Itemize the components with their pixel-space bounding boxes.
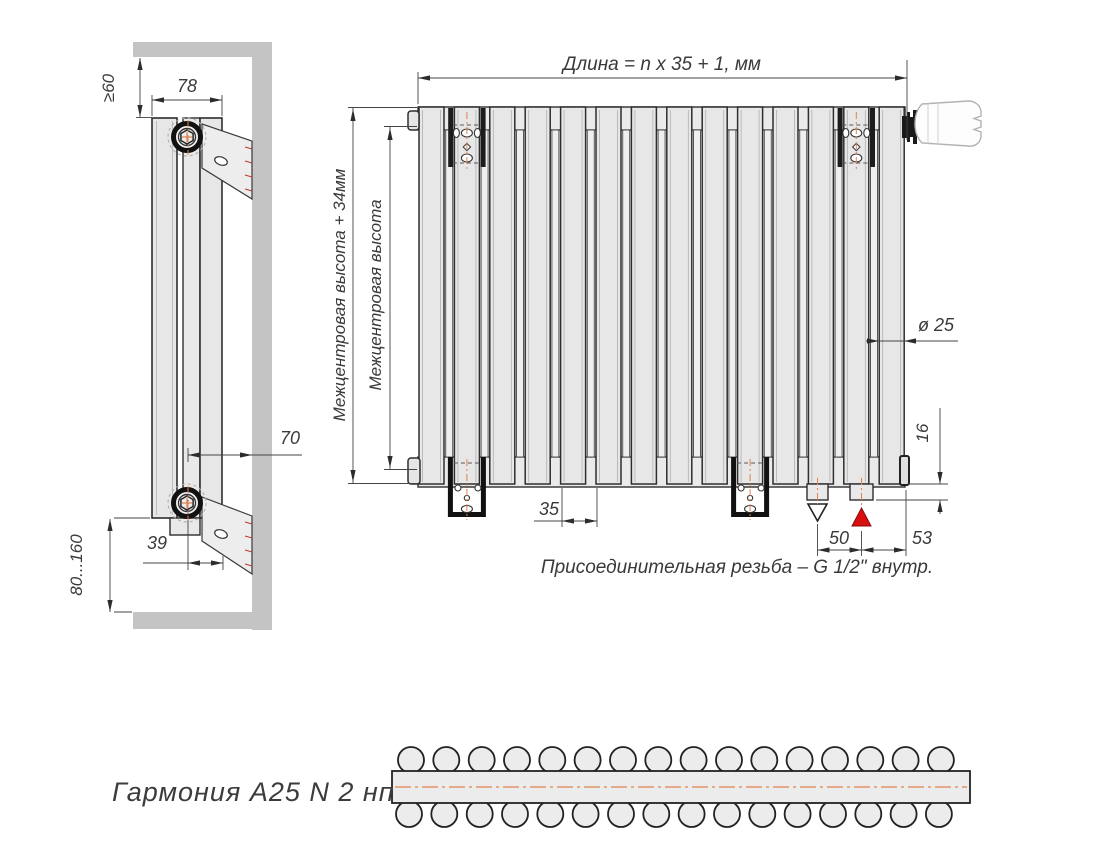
arrowhead bbox=[418, 75, 430, 80]
back-tube bbox=[764, 130, 771, 457]
top-view bbox=[392, 747, 970, 827]
arrowhead bbox=[387, 456, 392, 468]
tube-section bbox=[467, 801, 493, 827]
tube-section bbox=[398, 747, 424, 773]
dim-height-overall-label: Межцентровая высота + 34мм bbox=[330, 168, 349, 421]
dim-height-centers-label: Межцентровая высота bbox=[366, 199, 385, 390]
dim-53-label: 53 bbox=[912, 528, 932, 548]
bottom-connections bbox=[807, 484, 873, 526]
tube-section bbox=[575, 747, 601, 773]
arrowhead bbox=[350, 470, 355, 482]
back-tube bbox=[446, 130, 453, 457]
tube-section bbox=[537, 801, 563, 827]
tube-section bbox=[787, 747, 813, 773]
ceiling-section bbox=[133, 42, 272, 57]
tube-section bbox=[539, 747, 565, 773]
arrowhead bbox=[937, 500, 942, 512]
arrowhead bbox=[107, 519, 112, 531]
dim-16-label: 16 bbox=[913, 423, 932, 442]
tube-section bbox=[431, 801, 457, 827]
arrowhead bbox=[894, 547, 906, 552]
floor-section bbox=[133, 612, 272, 629]
tube-section bbox=[857, 747, 883, 773]
tube-section bbox=[785, 801, 811, 827]
arrowhead bbox=[210, 97, 222, 102]
left-bottom-cap bbox=[408, 458, 420, 484]
arrowhead bbox=[137, 58, 142, 70]
tube-section bbox=[926, 801, 952, 827]
tube-section bbox=[504, 747, 530, 773]
back-tube bbox=[871, 130, 878, 457]
back-tube bbox=[835, 130, 842, 457]
back-tube bbox=[623, 130, 630, 457]
back-tube bbox=[694, 130, 701, 457]
back-tube bbox=[729, 130, 736, 457]
right-bottom-cap bbox=[900, 456, 909, 485]
dim-35-label: 35 bbox=[539, 499, 560, 519]
arrowhead bbox=[240, 452, 252, 457]
dim-60-label: ≥60 bbox=[99, 73, 118, 102]
thread-note-label: Присоединительная резьба – G 1/2" внутр. bbox=[541, 557, 933, 578]
arrowhead bbox=[137, 105, 142, 117]
tube-section bbox=[751, 747, 777, 773]
tube-section bbox=[822, 747, 848, 773]
tube-section bbox=[469, 747, 495, 773]
tube-section bbox=[893, 747, 919, 773]
tube-section bbox=[645, 747, 671, 773]
wall-section bbox=[252, 42, 272, 630]
tube-section bbox=[820, 801, 846, 827]
arrowhead bbox=[387, 128, 392, 140]
back-row-sections bbox=[398, 747, 954, 773]
back-tube bbox=[517, 130, 524, 457]
arrowhead bbox=[895, 75, 907, 80]
union-nut-icon bbox=[168, 484, 206, 522]
tube-section bbox=[891, 801, 917, 827]
arrowhead bbox=[350, 109, 355, 121]
tube-section bbox=[749, 801, 775, 827]
back-tube bbox=[587, 130, 594, 457]
tube-section bbox=[681, 747, 707, 773]
tube-section bbox=[716, 747, 742, 773]
wall-bracket-bottom bbox=[202, 497, 252, 574]
tube-section bbox=[608, 801, 634, 827]
back-tube bbox=[481, 130, 488, 457]
tube-section bbox=[855, 801, 881, 827]
dim-39-label: 39 bbox=[147, 533, 167, 553]
dim-70-label: 70 bbox=[280, 428, 300, 448]
dim-floor-label: 80...160 bbox=[67, 534, 86, 596]
tube-section bbox=[396, 801, 422, 827]
tube-section bbox=[573, 801, 599, 827]
arrowhead bbox=[850, 547, 862, 552]
tube-section bbox=[714, 801, 740, 827]
dim-50-label: 50 bbox=[829, 528, 849, 548]
dim-diameter-label: ø 25 bbox=[918, 315, 955, 335]
back-tube bbox=[800, 130, 807, 457]
flow-out-marker bbox=[808, 504, 827, 521]
tube-section bbox=[502, 801, 528, 827]
arrowhead bbox=[188, 560, 200, 565]
drawing-canvas: Длина = n x 35 + 1, мм Межцентровая высо… bbox=[0, 0, 1097, 866]
front-view bbox=[408, 101, 981, 526]
radiator-technical-drawing: Длина = n x 35 + 1, мм Межцентровая высо… bbox=[0, 0, 1097, 866]
left-top-cap bbox=[408, 111, 419, 130]
dim-length-label: Длина = n x 35 + 1, мм bbox=[561, 54, 761, 75]
arrowhead bbox=[937, 472, 942, 484]
bottom-foot bbox=[170, 518, 200, 535]
arrowhead bbox=[904, 338, 916, 343]
tube-section bbox=[928, 747, 954, 773]
arrowhead bbox=[585, 518, 597, 523]
arrowhead bbox=[818, 547, 830, 552]
thermostat-head-icon bbox=[902, 101, 981, 146]
model-title: Гармония А25 N 2 нп bbox=[112, 777, 395, 807]
tube-section bbox=[643, 801, 669, 827]
back-tube bbox=[658, 130, 665, 457]
side-profile bbox=[152, 118, 222, 535]
arrowhead bbox=[152, 97, 164, 102]
flow-in-marker bbox=[852, 508, 871, 526]
dim-78-label: 78 bbox=[177, 76, 197, 96]
back-tube bbox=[552, 130, 559, 457]
tube-section bbox=[433, 747, 459, 773]
tube-section bbox=[679, 801, 705, 827]
arrowhead bbox=[562, 518, 574, 523]
arrowhead bbox=[107, 600, 112, 612]
arrowhead bbox=[862, 547, 874, 552]
arrowhead bbox=[211, 560, 223, 565]
front-row-sections bbox=[396, 801, 952, 827]
tube-section bbox=[610, 747, 636, 773]
union-nut-icon bbox=[168, 118, 206, 156]
